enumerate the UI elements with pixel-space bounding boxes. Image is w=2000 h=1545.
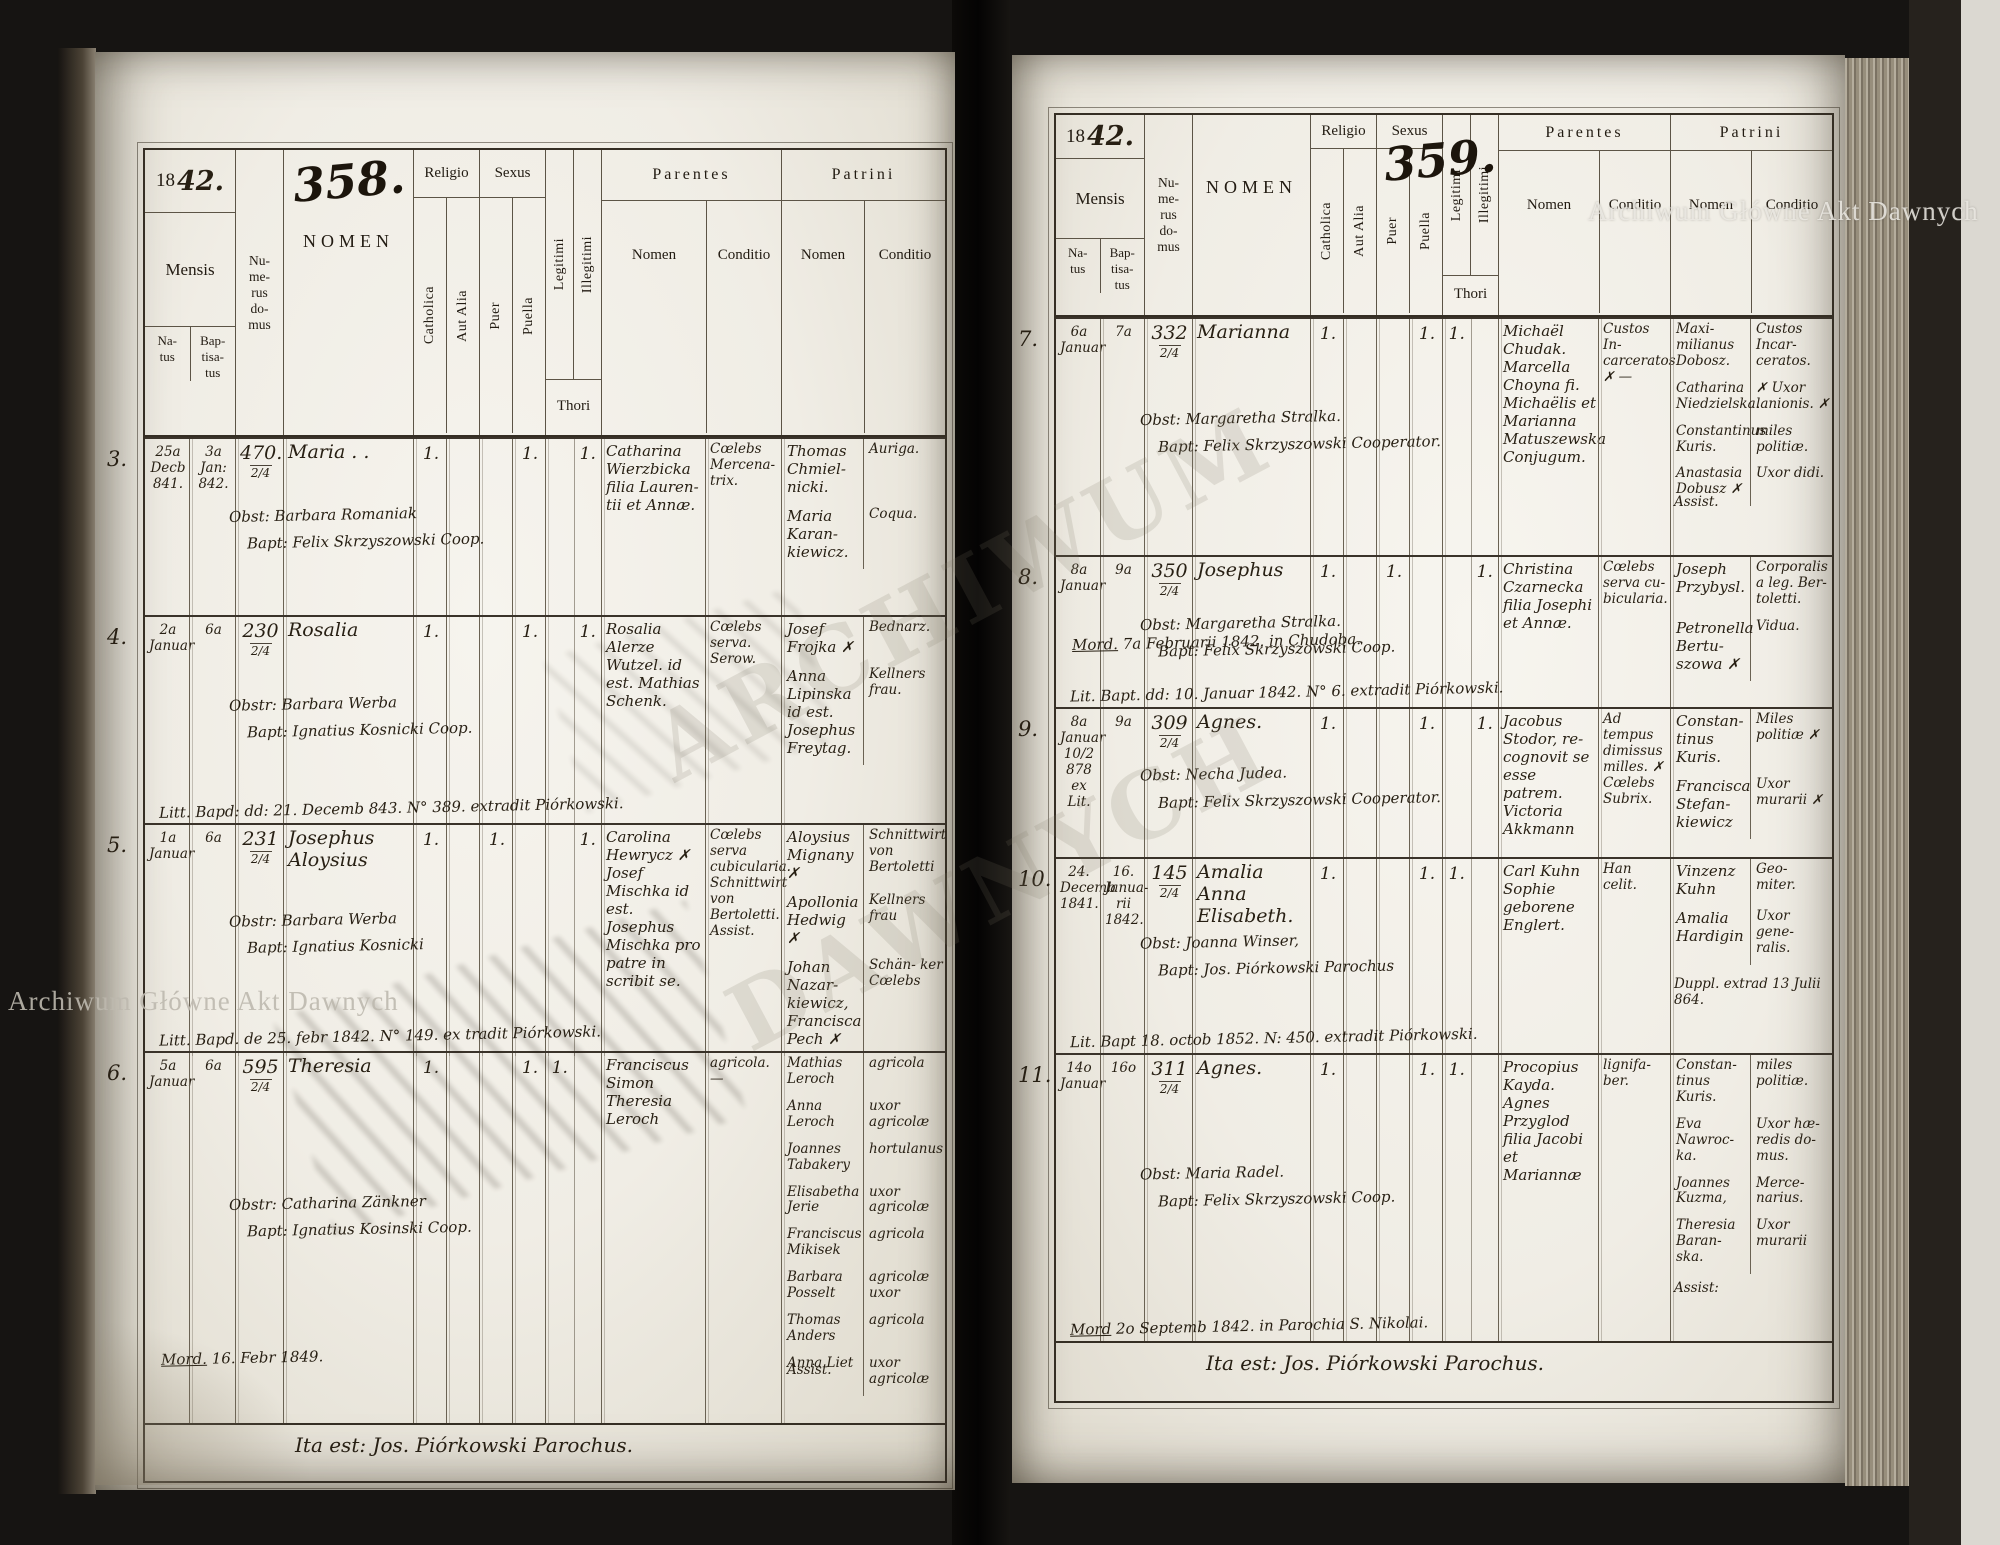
mark-illegitimi: [574, 1053, 602, 1423]
house-number-fraction: 2/4: [250, 851, 272, 866]
right-cover-edge: [1909, 0, 1961, 1545]
assist-note: Assist:: [1674, 1281, 1824, 1297]
house-number: 230: [240, 620, 281, 642]
patrinus-conditio: agricola: [864, 1224, 945, 1267]
book-spine: [952, 0, 1010, 1545]
midwife-line: Obst: Barbara Romaniak: [229, 504, 417, 526]
col-group-religio: ReligioCatholicaAut Alia: [413, 150, 479, 435]
baptisatus-label: Bap- tisa- tus: [190, 327, 236, 381]
midwife-line: Obst: Joanna Winser,: [1140, 931, 1299, 952]
table-row: 10.24. Decemb 1841.16. Janua- rii 1842.1…: [1056, 857, 1832, 1053]
patrinus-name: Amalia Hardigin: [1671, 906, 1751, 965]
watermark-text: Archiwum Główne Akt Dawnych: [8, 986, 399, 1017]
religio-label: Religio: [1311, 115, 1376, 149]
mark-puella: 1.: [1409, 709, 1442, 857]
numerus-label: Nu- me- rus do- mus: [236, 150, 283, 435]
table-row: 11.14o Januar16o3112/4Agnes.1.1.1.Procop…: [1056, 1053, 1832, 1341]
cell-parentes-nomen: Michaël Chudak. Marcella Choyna fi. Mich…: [1498, 319, 1598, 555]
cell-parentes-conditio: Han celit.: [1598, 859, 1670, 1053]
cell-baptisatus: 6a: [189, 617, 235, 823]
patrinus-name: Elisabetha Jerie: [782, 1182, 864, 1225]
cell-legitimi-thori: 1.: [1442, 709, 1498, 857]
mensis-subrow: Na- tusBap- tisa- tus: [1056, 239, 1144, 293]
cell-domus: 470.2/4: [235, 439, 283, 615]
year-printed: 18: [156, 170, 175, 192]
mark-puella: [512, 825, 545, 1056]
cell-baptisatus: 3a Jan: 842.: [189, 439, 235, 615]
watermark-text: Archiwum Główne Akt Dawnych: [1588, 196, 1979, 227]
patrini-nomen-label: Nomen: [1671, 151, 1751, 313]
patrinus-conditio: agricolæ uxor: [864, 1267, 945, 1310]
table-header: 1842.MensisNa- tusBap- tisa- tusNu- me- …: [145, 150, 945, 437]
col-group-mensis: 1842.MensisNa- tusBap- tisa- tus: [145, 150, 235, 435]
patrinus-name: Joannes Tabakery: [782, 1139, 864, 1182]
patrinus-name: Vinzenz Kuhn: [1671, 859, 1751, 906]
mark-aut_alia: [1343, 709, 1376, 857]
patrinus-name: Constan- tinus Kuris.: [1671, 1055, 1751, 1114]
mark-puer: [479, 617, 512, 823]
col-group-sexus: SexusPuerPuella: [479, 150, 545, 435]
house-number-fraction: 2/4: [1159, 1081, 1181, 1096]
col-group-nomen: NOMEN: [1192, 115, 1310, 315]
cell-baptisatus: 6a: [189, 825, 235, 1056]
patrinus-conditio: miles politiæ.: [1751, 1055, 1832, 1114]
cell-legitimi-thori: 1.: [545, 439, 601, 615]
mark-illegitimi: 1.: [574, 825, 602, 1056]
assist-note: Duppl. extrad 13 Julii 864.: [1674, 977, 1824, 1009]
col-group-parentes: ParentesNomenConditio: [601, 150, 781, 435]
assist-note: Assist.: [1674, 495, 1824, 511]
natus-label: Na- tus: [1056, 239, 1100, 293]
house-number: 332: [1149, 322, 1190, 344]
puella-label: Puella: [521, 297, 537, 335]
house-number: 311: [1149, 1058, 1190, 1080]
cell-patrini: Constan- tinus Kuris.Miles politiæ ✗Fran…: [1670, 709, 1832, 857]
cell-parentes-conditio: Cœlebs serva cu- bicularia.: [1598, 557, 1670, 707]
house-number: 470.: [240, 442, 281, 464]
house-number-fraction: 2/4: [1159, 345, 1181, 360]
cell-domus: 2302/4: [235, 617, 283, 823]
religio-label: Religio: [414, 150, 479, 198]
patrinus-name: Joseph Przybysl.: [1671, 557, 1751, 616]
patrinus-conditio: Uxor murarii: [1751, 1215, 1832, 1274]
cell-patrini: Constan- tinus Kuris.miles politiæ.Eva N…: [1670, 1055, 1832, 1341]
col-group-patrini: PatriniNomenConditio: [781, 150, 945, 435]
mark-aut_alia: [446, 825, 479, 1056]
attestation-line: Ita est: Jos. Piórkowski Parochus.: [295, 1433, 633, 1457]
cell-parentes-nomen: Carl Kuhn Sophie geborene Englert.: [1498, 859, 1598, 1053]
cell-parentes-conditio: lignifa- ber.: [1598, 1055, 1670, 1341]
patrinus-name: Thomas Chmiel- nicki.: [782, 439, 864, 504]
attestation-line: Ita est: Jos. Piórkowski Parochus.: [1206, 1351, 1544, 1375]
cell-nomen: Maria . .: [283, 439, 413, 615]
parentes-nomen-label: Nomen: [602, 201, 706, 433]
entry-number: 11.: [1018, 1063, 1051, 1087]
sexus-label: Sexus: [480, 150, 545, 198]
patrinus-name: Mathias Leroch: [782, 1053, 864, 1096]
patrinus-name: Joannes Kuzma,: [1671, 1173, 1751, 1216]
religio-subcolumns: CatholicaAut Alia: [414, 198, 479, 433]
house-number-fraction: 2/4: [1159, 885, 1181, 900]
patrinus-name: Franciscus Mikisek: [782, 1224, 864, 1267]
legitimi-label: Legitimi: [552, 238, 568, 290]
patrini-subcolumns: NomenConditio: [782, 201, 945, 433]
mark-illegitimi: 1.: [574, 617, 602, 823]
year-printed: 18: [1066, 126, 1085, 148]
parentes-label: Parentes: [1499, 115, 1670, 151]
mensis-subrow: Na- tusBap- tisa- tus: [145, 327, 235, 381]
nomen-label: NOMEN: [1193, 115, 1310, 198]
cell-legitimi-thori: 1.: [545, 617, 601, 823]
mark-puella: 1.: [512, 439, 545, 615]
baptisatus-label: Bap- tisa- tus: [1100, 239, 1145, 293]
natus-label: Na- tus: [145, 327, 190, 381]
entry-number: 3.: [107, 447, 127, 471]
cell-parentes-conditio: agricola. —: [705, 1053, 781, 1423]
cell-domus: 1452/4: [1144, 859, 1192, 1053]
year-handwritten: 42.: [177, 166, 224, 197]
cell-parentes-conditio: Custos In- carceratos ✗ —: [1598, 319, 1670, 555]
page-fore-edge: [1845, 58, 1909, 1486]
patrini-label: Patrini: [782, 150, 945, 201]
assist-note: Assist.: [787, 1363, 937, 1379]
cell-parentes-nomen: Carolina Hewrycz ✗ Josef Mischka id est.…: [601, 825, 705, 1056]
year-label: 1842.: [1056, 115, 1144, 159]
cell-natus: 1a Januar: [145, 825, 189, 1056]
mensis-label: Mensis: [145, 213, 235, 327]
patrinus-conditio: uxor agricolæ: [864, 1182, 945, 1225]
cell-parentes-nomen: Procopius Kayda. Agnes Przyglod filia Ja…: [1498, 1055, 1598, 1341]
mark-illegitimi: [1471, 1055, 1499, 1341]
patrinus-name: Francisca Stefan- kiewicz: [1671, 774, 1751, 839]
mark-legitimi: 1.: [1443, 1055, 1471, 1341]
scanner-edge-strip: [1961, 0, 2000, 1545]
cell-patrini: Joseph Przybysl.Corporalis a leg. Ber- t…: [1670, 557, 1832, 707]
mark-legitimi: [1443, 709, 1471, 857]
left-page: 1842.MensisNa- tusBap- tisa- tusNu- me- …: [95, 52, 955, 1490]
patrinus-conditio: Uxor murarii ✗: [1751, 774, 1832, 839]
patrinus-conditio: uxor agricolæ: [864, 1096, 945, 1139]
mark-legitimi: 1.: [546, 1053, 574, 1423]
patrini-subcolumns: NomenConditio: [1671, 151, 1832, 313]
cell-patrini: Maxi- milianus Dobosz.Custos Incar- cera…: [1670, 319, 1832, 555]
patrinus-name: Maria Karan- kiewicz.: [782, 504, 864, 569]
catholica-label: Catholica: [1319, 202, 1335, 260]
mark-puer: [479, 439, 512, 615]
entry-number: 4.: [107, 625, 127, 649]
cell-baptisatus: 9a: [1100, 557, 1144, 707]
year-label: 1842.: [145, 150, 235, 213]
mark-illegitimi: 1.: [1471, 709, 1499, 857]
mark-puella: 1.: [512, 1053, 545, 1423]
patrinus-conditio: hortulanus: [864, 1139, 945, 1182]
house-number: 595: [240, 1056, 281, 1078]
legitimi-subcolumns: LegitimiIllegitimi: [546, 150, 601, 379]
mark-puella: 1.: [1409, 1055, 1442, 1341]
patrinus-conditio: Uxor hæ- redis do- mus.: [1751, 1114, 1832, 1173]
midwife-line: Obst: Maria Radel.: [1140, 1162, 1284, 1183]
table-footer: Ita est: Jos. Piórkowski Parochus.: [1056, 1341, 1832, 1401]
thori-label: Thori: [1443, 275, 1498, 313]
illegitimi-label: Illegitimi: [580, 236, 596, 293]
parentes-subcolumns: NomenConditio: [602, 201, 781, 433]
entry-number: 7.: [1018, 327, 1038, 351]
parentes-conditio-label: Conditio: [706, 201, 781, 433]
parentes-conditio-label: Conditio: [1599, 151, 1670, 313]
patrini-label: Patrini: [1671, 115, 1832, 151]
worn-page-corner: [95, 1320, 315, 1485]
sexus-subcolumns: PuerPuella: [480, 198, 545, 433]
patrinus-name: Petronella Bertu- szowa ✗: [1671, 616, 1751, 681]
mark-catholica: 1.: [413, 439, 446, 615]
mark-puer: [479, 1053, 512, 1423]
house-number: 145: [1149, 862, 1190, 884]
cell-legitimi-thori: 1.: [545, 825, 601, 1056]
cell-natus: 25a Decb 841.: [145, 439, 189, 615]
mark-legitimi: 1.: [1443, 319, 1471, 555]
mark-legitimi: [546, 825, 574, 1056]
mark-illegitimi: [1471, 319, 1499, 555]
patrinus-name: Anna Leroch: [782, 1096, 864, 1139]
col-group-religio: ReligioCatholicaAut Alia: [1310, 115, 1376, 315]
patrinus-name: Catharina Niedzielska.: [1671, 378, 1751, 421]
house-number: 231: [240, 828, 281, 850]
cell-parentes-conditio: Cœlebs Mercena- trix.: [705, 439, 781, 615]
patrinus-conditio: Corporalis a leg. Ber- toletti.: [1751, 557, 1832, 616]
entry-number: 6.: [107, 1061, 127, 1085]
patrinus-name: Eva Nawroc- ka.: [1671, 1114, 1751, 1173]
cell-legitimi-thori: 1.: [1442, 319, 1498, 555]
patrinus-conditio: agricola: [864, 1310, 945, 1353]
patrinus-conditio: Auriga.: [864, 439, 945, 504]
margin-note-underlined: Mord: [1070, 1320, 1112, 1339]
cell-parentes-nomen: Jacobus Stodor, re- cognovit se esse pat…: [1498, 709, 1598, 857]
patrinus-conditio: Vidua.: [1751, 616, 1832, 681]
page-number: 359.: [1382, 128, 1498, 192]
house-number: 350: [1149, 560, 1190, 582]
entry-number: 9.: [1018, 717, 1038, 741]
page-number: 358.: [291, 149, 407, 213]
col-group-legitimi: LegitimiIllegitimiThori: [545, 150, 601, 435]
house-number-fraction: 2/4: [250, 465, 272, 480]
patrinus-name: Theresia Baran- ska.: [1671, 1215, 1751, 1274]
puer-label: Puer: [1385, 217, 1401, 245]
mark-illegitimi: 1.: [574, 439, 602, 615]
register-table-left: 1842.MensisNa- tusBap- tisa- tusNu- me- …: [143, 148, 947, 1483]
cell-baptisatus: 16o: [1100, 1055, 1144, 1341]
patrinus-name: Barbara Posselt: [782, 1267, 864, 1310]
baptizer-line: Bapt: Ignatius Kosnicki: [247, 935, 424, 957]
house-number-fraction: 2/4: [250, 1079, 272, 1094]
cell-natus: 14o Januar: [1056, 1055, 1100, 1341]
mark-catholica: 1.: [413, 1053, 446, 1423]
col-group-numerus: Nu- me- rus do- mus: [1144, 115, 1192, 315]
patrinus-name: Thomas Anders: [782, 1310, 864, 1353]
col-group-numerus: Nu- me- rus do- mus: [235, 150, 283, 435]
year-handwritten: 42.: [1087, 121, 1134, 152]
table-row: 3.25a Decb 841.3a Jan: 842.470.2/4Maria …: [145, 437, 945, 615]
cell-patrini: Vinzenz KuhnGeo- miter.Amalia HardiginUx…: [1670, 859, 1832, 1053]
cell-parentes-nomen: Christina Czarnecka filia Josephi et Ann…: [1498, 557, 1598, 707]
patrini-conditio-label: Conditio: [1751, 151, 1832, 313]
cell-parentes-nomen: Catharina Wierzbicka filia Lauren- tii e…: [601, 439, 705, 615]
patrinus-conditio: Geo- miter.: [1751, 859, 1832, 906]
religio-subcolumns: CatholicaAut Alia: [1311, 149, 1376, 313]
parentes-label: Parentes: [602, 150, 781, 201]
mark-catholica: 1.: [1310, 859, 1343, 1053]
patrinus-conditio: Merce- narius.: [1751, 1173, 1832, 1216]
patrinus-conditio: ✗ Uxor lanionis. ✗: [1751, 378, 1832, 421]
left-page-edge: [58, 48, 96, 1494]
cell-legitimi-thori: 1.: [1442, 1055, 1498, 1341]
entry-number: 5.: [107, 833, 127, 857]
mark-puer: [1376, 709, 1409, 857]
puer-label: Puer: [488, 302, 504, 330]
aut-alia-label: Aut Alia: [455, 290, 471, 342]
aut-alia-label: Aut Alia: [1352, 205, 1368, 257]
mark-catholica: 1.: [1310, 709, 1343, 857]
patrinus-conditio: agricola: [864, 1053, 945, 1096]
parentes-nomen-label: Nomen: [1499, 151, 1599, 313]
patrinus-name: Aloysius Mignany ✗: [782, 825, 864, 890]
midwife-line: Obstr: Barbara Werba: [229, 909, 397, 931]
table-row: 8.8a Januar9a3502/4Josephus1.1.1.Christi…: [1056, 555, 1832, 707]
patrinus-conditio: miles politiæ.: [1751, 421, 1832, 464]
col-group-mensis: 1842.MensisNa- tusBap- tisa- tus: [1056, 115, 1144, 315]
mark-legitimi: [546, 617, 574, 823]
mark-legitimi: [546, 439, 574, 615]
thori-label: Thori: [546, 379, 601, 433]
numerus-label: Nu- me- rus do- mus: [1145, 115, 1192, 315]
parentes-subcolumns: NomenConditio: [1499, 151, 1670, 313]
house-number-fraction: 2/4: [1159, 583, 1181, 598]
patrini-conditio-label: Conditio: [864, 201, 945, 433]
mark-puer: 1.: [479, 825, 512, 1056]
mark-puella: 1.: [1409, 859, 1442, 1053]
mensis-label: Mensis: [1056, 159, 1144, 239]
cell-nomen: Amalia Anna Elisabeth.: [1192, 859, 1310, 1053]
catholica-label: Catholica: [422, 286, 438, 344]
midwife-line: Obstr: Catharina Zänkner: [229, 1192, 426, 1214]
mark-legitimi: 1.: [1443, 859, 1471, 1053]
patrinus-name: Constan- tinus Kuris.: [1671, 709, 1751, 774]
margin-note-underlined: Mord.: [1072, 635, 1118, 654]
puella-label: Puella: [1418, 212, 1434, 250]
cell-natus: 2a Januar: [145, 617, 189, 823]
patrini-nomen-label: Nomen: [782, 201, 864, 433]
cell-parentes-conditio: Ad tempus dimissus milles. ✗ Cœlebs Subr…: [1598, 709, 1670, 857]
house-number-fraction: 2/4: [250, 643, 272, 658]
patrinus-conditio: Uxor gene- ralis.: [1751, 906, 1832, 965]
cell-legitimi-thori: 1.: [545, 1053, 601, 1423]
mark-aut_alia: [446, 1053, 479, 1423]
patrinus-conditio: Miles politiæ ✗: [1751, 709, 1832, 774]
cell-parentes-nomen: Franciscus Simon Theresia Leroch: [601, 1053, 705, 1423]
patrinus-name: Maxi- milianus Dobosz.: [1671, 319, 1751, 378]
mark-puella: 1.: [512, 617, 545, 823]
patrinus-name: Constantinus Kuris.: [1671, 421, 1751, 464]
mark-aut_alia: [446, 439, 479, 615]
book-scan: 1842.MensisNa- tusBap- tisa- tusNu- me- …: [0, 0, 2000, 1545]
patrinus-conditio: Custos Incar- ceratos.: [1751, 319, 1832, 378]
